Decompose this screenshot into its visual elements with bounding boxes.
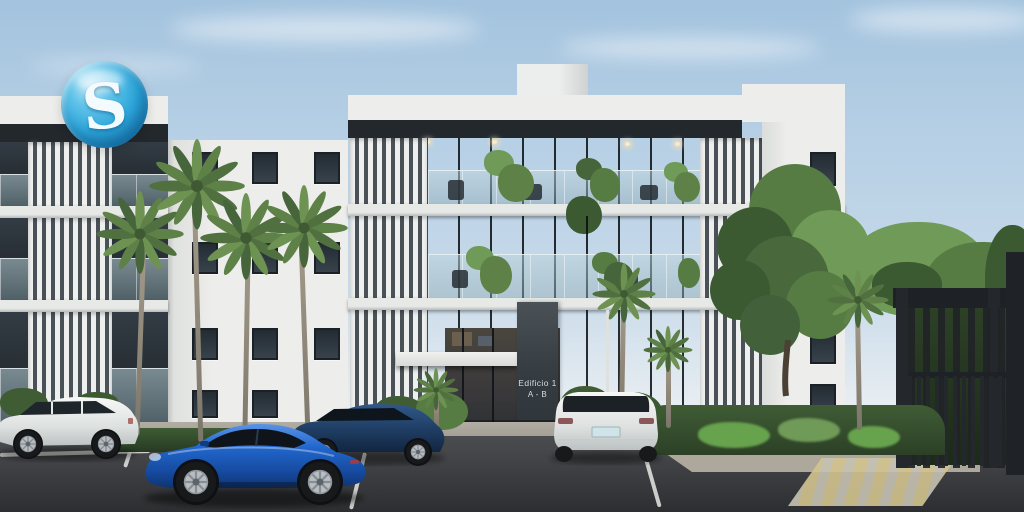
window (314, 152, 340, 184)
logo-letter: S (57, 57, 153, 153)
balcony-chair (452, 270, 468, 288)
louver-panel (350, 138, 428, 204)
roof-fascia (348, 120, 742, 138)
fern-bush (848, 426, 900, 448)
tree-trunk (785, 340, 788, 396)
palm-tree (261, 185, 347, 271)
white-wagon-car (0, 384, 142, 464)
fern-bush (778, 418, 840, 442)
balcony-chair (640, 185, 658, 200)
window (252, 328, 278, 360)
balcony-plant (674, 172, 700, 202)
louver-panel (350, 216, 428, 298)
balcony-plant (480, 256, 512, 294)
blue-sports-car (138, 408, 370, 510)
cloud (850, 8, 1024, 32)
gate-edge-post (1006, 252, 1024, 475)
fern-bush (698, 422, 770, 448)
ceiling-light (675, 142, 680, 146)
entrance-canopy (396, 352, 517, 366)
cloud (170, 16, 480, 42)
window (314, 328, 340, 360)
palm-tree (644, 326, 692, 374)
balcony-plant (498, 164, 534, 202)
window (252, 152, 278, 184)
balcony-railing (428, 170, 700, 205)
gate-beam (893, 288, 1024, 308)
balcony-chair (448, 180, 464, 200)
white-hatchback-car (544, 382, 668, 466)
cloud (560, 38, 820, 58)
parapet-raised (742, 84, 845, 122)
ceiling-light (625, 142, 630, 146)
balcony-plant (678, 258, 700, 288)
door-frame (492, 328, 494, 426)
watermark-logo: S (61, 61, 148, 148)
palm-tree (828, 270, 888, 330)
scene: Edificio 1 A - B (0, 0, 1024, 512)
palm-tree (593, 263, 655, 325)
balcony-plant (590, 168, 620, 202)
ceiling-light (492, 140, 497, 144)
